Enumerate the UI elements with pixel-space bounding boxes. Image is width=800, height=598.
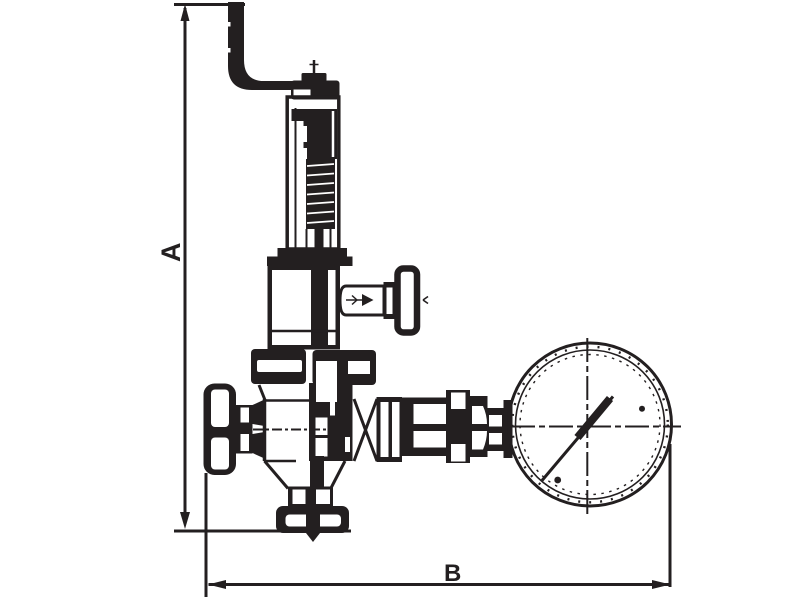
svg-text:B: B: [444, 560, 461, 587]
svg-text:A: A: [156, 243, 186, 263]
